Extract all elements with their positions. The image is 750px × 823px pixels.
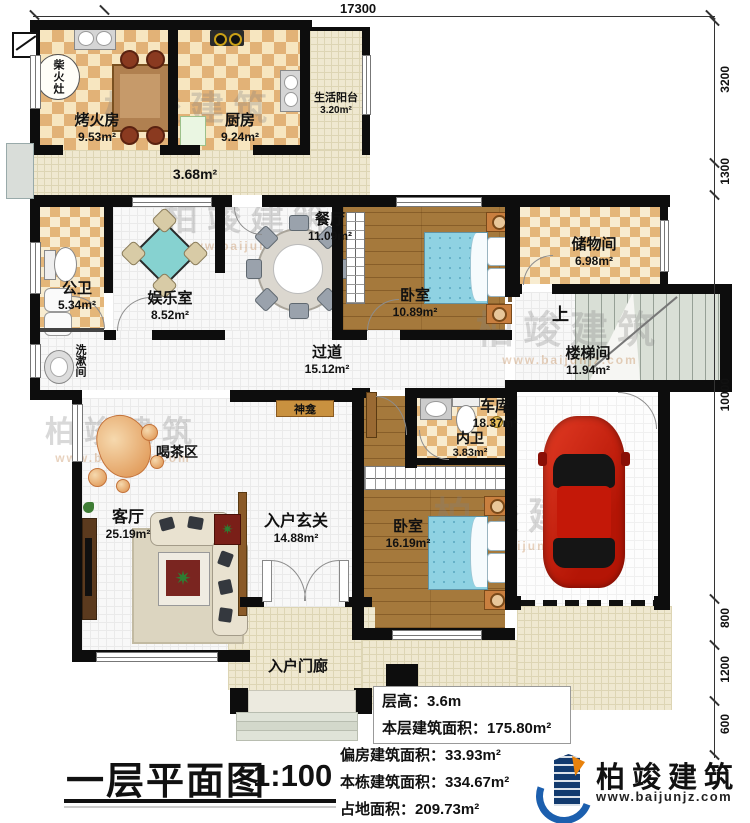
room-label-hallway: 过道15.12m² (305, 344, 350, 376)
sofa-pillow (187, 516, 204, 530)
shoe-cabinet: ✷ (214, 514, 241, 545)
porch-landing (248, 690, 356, 714)
kitchen-sink-bowl (284, 92, 298, 107)
wood-stove-label: 柴火灶 (50, 59, 66, 95)
title-scale: 1:100 (253, 758, 332, 794)
wall (168, 30, 178, 150)
plant (83, 502, 94, 513)
room-label-storage: 储物间6.98m² (571, 236, 616, 268)
washroom-sink-bowl (50, 357, 68, 377)
room-label-bedroom1: 卧室10.89m² (393, 287, 438, 319)
window (660, 220, 669, 272)
wall (352, 388, 364, 628)
bed-sheet-fold (470, 517, 487, 587)
dining-chair (246, 259, 262, 279)
room-label-annex-corridor: 3.68m² (173, 166, 217, 183)
nightstand (486, 304, 512, 324)
room-label-inner-bath: 内卫3.83m² (453, 430, 488, 460)
stool (120, 50, 139, 69)
wall (510, 284, 522, 294)
kitchen-sink-bowl (284, 75, 298, 90)
tea-stool (141, 424, 158, 441)
dim-line-top (33, 16, 715, 17)
porch-pillar (230, 688, 248, 714)
wall (30, 145, 63, 155)
wall (104, 330, 116, 340)
shrine-box: 神龛 (276, 400, 334, 417)
window (30, 344, 41, 378)
room-label-bedroom2: 卧室16.19m² (386, 518, 431, 550)
round-dining-table-center (273, 244, 323, 294)
sofa-pillow (218, 579, 234, 595)
room-label-garage: 车库18.37m² (473, 398, 518, 430)
room-label-living: 客厅25.19m² (106, 508, 151, 542)
entry-door-leaf (339, 560, 349, 602)
gas-burner (214, 33, 227, 46)
wall (30, 20, 312, 30)
window (132, 197, 212, 207)
stool (146, 126, 165, 145)
window (396, 197, 482, 207)
window (30, 55, 41, 109)
dim-right-800: 800 (718, 608, 732, 628)
wall (215, 207, 225, 273)
room-label-balcony: 生活阳台3.20m² (314, 92, 358, 117)
porch-pillar (354, 688, 372, 714)
room-label-fire-room: 烤火房9.53m² (74, 112, 119, 144)
page-title: 一层平面图 (66, 750, 266, 805)
window (392, 630, 482, 640)
car-roof (557, 486, 611, 540)
window (30, 242, 41, 294)
tv (85, 538, 92, 596)
wall (30, 195, 670, 207)
wall (152, 330, 222, 340)
dim-right-1200: 1200 (718, 656, 732, 683)
inner-bath-sink-bowl (425, 401, 447, 417)
wall (332, 330, 367, 340)
stool (120, 126, 139, 145)
porch-step (236, 730, 358, 741)
dim-top-label: 17300 (340, 1, 376, 16)
wall (505, 380, 732, 392)
wall (405, 388, 508, 398)
garage-door-dashed (521, 600, 654, 606)
door-gap (232, 195, 262, 207)
brand-url: www.baijunjz.com (596, 789, 732, 804)
window (362, 55, 371, 115)
room-label-kitchen: 厨房9.24m² (221, 112, 259, 144)
wall (310, 27, 370, 31)
bed-sheet-fold (470, 233, 487, 301)
shrine-label: 神龛 (294, 401, 316, 417)
car-windshield (553, 454, 615, 488)
wall (400, 330, 512, 340)
stat-building-area: 本栋建筑面积：334.67m² (340, 771, 509, 792)
wall (720, 284, 732, 390)
fire-room-sink-bowl (96, 31, 112, 46)
title-underline-thin (64, 806, 336, 808)
dim-right-3200: 3200 (718, 66, 732, 93)
wall (104, 207, 113, 293)
dim-right-10000: 10000 (718, 378, 732, 411)
window (96, 652, 218, 662)
wall (505, 596, 521, 610)
dim-right-600: 600 (718, 714, 732, 734)
wood-stove-circle: 柴火灶 (36, 54, 80, 100)
room-label-tea-area: 喝茶区 (156, 442, 198, 462)
wardrobe (364, 466, 508, 490)
balcony-floor (310, 30, 363, 150)
wall (300, 27, 310, 150)
stat-floor-height: 层高：3.6m (382, 690, 461, 711)
wall (160, 145, 200, 155)
wall (215, 330, 225, 340)
dim-tick (29, 10, 40, 21)
fire-room-sink-bowl (78, 31, 94, 46)
wall (405, 388, 417, 468)
stat-land-area: 占地面积：209.73m² (340, 798, 479, 819)
room-label-entry-hall: 入户玄关14.88m² (264, 512, 328, 546)
brand-logo-icon (536, 752, 592, 814)
stool (146, 50, 165, 69)
room-label-stairwell: 楼梯间11.94m² (565, 345, 610, 377)
room-label-washroom: 洗漱间 (74, 344, 85, 377)
wall (552, 284, 732, 294)
exterior-platform (6, 143, 34, 199)
gas-burner (229, 33, 242, 46)
stairs-up-label: 上 (552, 300, 569, 325)
window (72, 404, 83, 462)
stat-annex-area: 偏房建筑面积：33.93m² (340, 744, 501, 765)
wall (253, 145, 310, 155)
wall (240, 597, 264, 607)
toilet-bowl (54, 247, 77, 282)
car-mirror (538, 452, 547, 466)
tea-stool (116, 479, 130, 493)
stat-floor-area: 本层建筑面积：175.80m² (382, 717, 551, 738)
dining-chair (289, 303, 309, 319)
coffee-table-inner: ✷ (166, 560, 200, 596)
wall (658, 388, 670, 606)
washer (44, 312, 72, 336)
car-rear-glass (553, 538, 615, 568)
room-label-game-room: 娱乐室8.52m² (147, 290, 192, 322)
car-mirror (621, 452, 630, 466)
floor-plan-canvas: 柏竣建筑 柏竣建筑 www.baijunjz.com 柏竣建筑 www.baij… (0, 0, 750, 823)
wall (654, 596, 670, 610)
dim-tick (99, 5, 110, 16)
dim-right-1300: 1300 (718, 158, 732, 185)
sofa-pillow (218, 607, 233, 623)
room-label-dining: 餐厅11.09m² (308, 211, 352, 243)
fridge (180, 116, 206, 146)
title-underline (64, 799, 336, 803)
room-label-public-bath: 公卫5.34m² (58, 280, 96, 312)
dining-chair (289, 215, 309, 231)
wall (345, 597, 372, 607)
room-label-porch: 入户门廊 (268, 655, 328, 676)
dining-table-firewood-top (120, 74, 160, 118)
car (543, 416, 625, 588)
tea-stool (88, 468, 107, 487)
